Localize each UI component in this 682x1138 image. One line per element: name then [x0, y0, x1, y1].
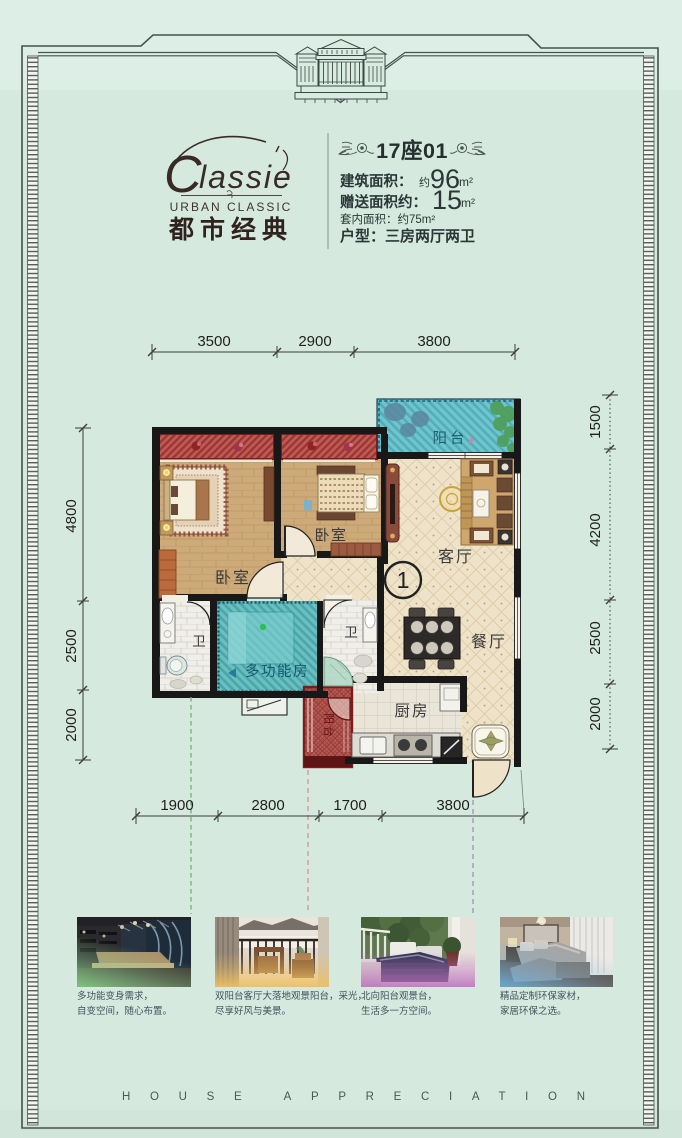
svg-text:客厅: 客厅 — [438, 548, 474, 566]
svg-text:卧室: 卧室 — [215, 569, 251, 587]
svg-text:约: 约 — [419, 176, 430, 189]
svg-text:2000: 2000 — [587, 697, 604, 730]
svg-text:尽享好风与美景。: 尽享好风与美景。 — [215, 1005, 291, 1017]
svg-text:2500: 2500 — [587, 621, 604, 654]
svg-text:3800: 3800 — [436, 797, 469, 814]
svg-text:4800: 4800 — [63, 499, 80, 532]
svg-text:2800: 2800 — [251, 797, 284, 814]
svg-text:双阳台客厅大落地观景阳台，采光，: 双阳台客厅大落地观景阳台，采光， — [215, 990, 367, 1002]
svg-text:家居环保之选。: 家居环保之选。 — [500, 1005, 567, 1017]
svg-text:4200: 4200 — [587, 513, 604, 546]
svg-text:URBAN CLASSIC: URBAN CLASSIC — [170, 200, 293, 214]
svg-text:套内面积：约75m²: 套内面积：约75m² — [340, 212, 435, 226]
svg-text:生活多一方空间。: 生活多一方空间。 — [361, 1005, 437, 1017]
svg-text:赠送面积约：: 赠送面积约： — [340, 193, 427, 211]
svg-text:2500: 2500 — [63, 629, 80, 662]
svg-text:1700: 1700 — [333, 797, 366, 814]
svg-text:多功能变身需求，: 多功能变身需求， — [77, 990, 153, 1002]
svg-text:都市经典: 都市经典 — [168, 215, 293, 244]
svg-text:卧室: 卧室 — [314, 527, 347, 544]
svg-text:卫: 卫 — [344, 625, 358, 640]
svg-text:户型：三房两厅两卫: 户型：三房两厅两卫 — [340, 227, 475, 245]
svg-text:精品定制环保家材，: 精品定制环保家材， — [500, 990, 586, 1002]
svg-text:2900: 2900 — [298, 333, 331, 350]
svg-text:阳台: 阳台 — [433, 430, 468, 447]
svg-text:厨房: 厨房 — [394, 702, 429, 720]
svg-text:2000: 2000 — [63, 708, 80, 741]
svg-text:17座01: 17座01 — [376, 138, 448, 163]
svg-text:15: 15 — [432, 185, 462, 215]
svg-text:lassie: lassie — [199, 159, 293, 195]
svg-text:m²: m² — [461, 196, 475, 210]
svg-text:3800: 3800 — [417, 333, 450, 350]
svg-text:1: 1 — [397, 567, 410, 593]
svg-text:1900: 1900 — [160, 797, 193, 814]
svg-text:阳台: 阳台 — [322, 713, 336, 739]
svg-text:1500: 1500 — [587, 405, 604, 438]
svg-text:建筑面积：: 建筑面积： — [340, 172, 413, 190]
svg-text:餐厅: 餐厅 — [471, 633, 507, 651]
svg-text:多功能房: 多功能房 — [245, 663, 309, 680]
svg-text:3500: 3500 — [197, 333, 230, 350]
svg-text:自变空间，随心布置。: 自变空间，随心布置。 — [77, 1005, 172, 1017]
svg-text:北向阳台观景台，: 北向阳台观景台， — [361, 990, 437, 1002]
svg-text:卫: 卫 — [192, 634, 206, 649]
